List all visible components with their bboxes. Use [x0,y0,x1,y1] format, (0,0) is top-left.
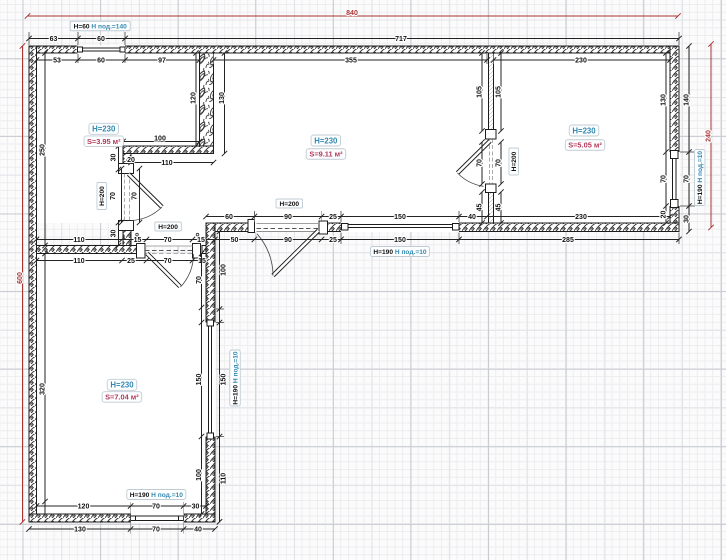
svg-text:H=230: H=230 [92,125,116,134]
svg-text:320: 320 [39,383,46,395]
svg-text:285: 285 [562,237,574,244]
svg-text:90: 90 [284,214,292,221]
svg-text:70: 70 [196,276,203,284]
svg-text:60: 60 [97,58,105,65]
svg-text:H=230: H=230 [314,136,338,145]
svg-text:S=9.11 м²: S=9.11 м² [309,150,343,159]
svg-text:70: 70 [164,258,172,265]
svg-text:H=190 Н под.=10: H=190 Н под.=10 [373,249,427,256]
svg-text:717: 717 [395,36,407,43]
svg-text:130: 130 [219,92,226,104]
svg-text:30: 30 [192,504,200,511]
svg-text:120: 120 [78,504,90,511]
svg-text:S=5.05 м²: S=5.05 м² [568,141,602,150]
svg-text:105: 105 [476,86,483,98]
svg-text:150: 150 [220,374,227,386]
svg-text:15: 15 [198,258,206,265]
svg-text:45: 45 [496,204,503,212]
svg-text:70: 70 [152,504,160,511]
svg-text:20: 20 [127,157,135,164]
svg-text:110: 110 [161,160,172,167]
svg-text:140: 140 [683,94,690,106]
svg-text:70: 70 [152,527,160,534]
svg-text:250: 250 [39,144,46,156]
svg-text:S=3.95 м²: S=3.95 м² [87,137,121,146]
svg-text:70: 70 [164,237,172,244]
svg-text:25: 25 [329,214,337,221]
svg-text:230: 230 [575,58,587,65]
svg-text:105: 105 [496,86,503,98]
svg-text:45: 45 [476,204,483,212]
svg-text:S=7.04 м²: S=7.04 м² [105,393,139,402]
svg-text:110: 110 [220,473,227,484]
svg-text:63: 63 [50,36,58,43]
svg-text:355: 355 [345,58,357,65]
svg-text:100: 100 [154,136,166,143]
svg-text:100: 100 [196,469,203,481]
svg-text:70: 70 [660,175,667,183]
svg-text:H=190 Н под.=10: H=190 Н под.=10 [232,351,239,405]
svg-text:60: 60 [225,214,233,221]
svg-text:60: 60 [97,36,105,43]
svg-text:840: 840 [346,10,358,17]
svg-text:130: 130 [660,94,667,106]
svg-text:H=200: H=200 [158,224,178,231]
svg-text:25: 25 [127,258,135,265]
svg-text:70: 70 [683,175,690,183]
svg-text:H=200: H=200 [511,151,518,171]
svg-text:15: 15 [134,237,142,244]
svg-text:70: 70 [476,159,483,167]
svg-text:30: 30 [110,230,117,238]
svg-text:H=230: H=230 [110,381,134,390]
svg-text:230: 230 [575,214,587,221]
svg-text:100: 100 [220,264,227,276]
svg-text:53: 53 [53,58,61,65]
svg-text:97: 97 [158,58,166,65]
svg-text:H=60 Н под.=140: H=60 Н под.=140 [74,23,128,30]
svg-text:90: 90 [284,237,292,244]
svg-text:25: 25 [329,237,337,244]
svg-text:20: 20 [660,211,667,219]
svg-text:600: 600 [17,272,24,284]
svg-text:H=190 Н под.=10: H=190 Н под.=10 [697,151,704,205]
svg-text:110: 110 [73,237,84,244]
svg-text:150: 150 [196,374,203,386]
svg-text:130: 130 [74,527,86,534]
svg-text:H=190 Н под.=10: H=190 Н под.=10 [130,492,184,499]
svg-text:70: 70 [110,192,117,200]
svg-text:50: 50 [231,237,239,244]
svg-text:70: 70 [132,192,139,200]
svg-text:150: 150 [394,237,406,244]
svg-text:150: 150 [394,214,406,221]
svg-text:30: 30 [110,154,117,162]
svg-text:H=200: H=200 [99,186,106,206]
svg-text:120: 120 [190,92,197,104]
svg-text:70: 70 [496,159,503,167]
svg-text:H=230: H=230 [572,126,596,135]
svg-text:240: 240 [705,130,712,142]
svg-text:H=200: H=200 [279,201,299,208]
svg-text:30: 30 [683,215,690,223]
svg-text:40: 40 [468,214,476,221]
svg-text:15: 15 [197,237,205,244]
svg-text:40: 40 [194,527,202,534]
svg-text:110: 110 [73,258,84,265]
